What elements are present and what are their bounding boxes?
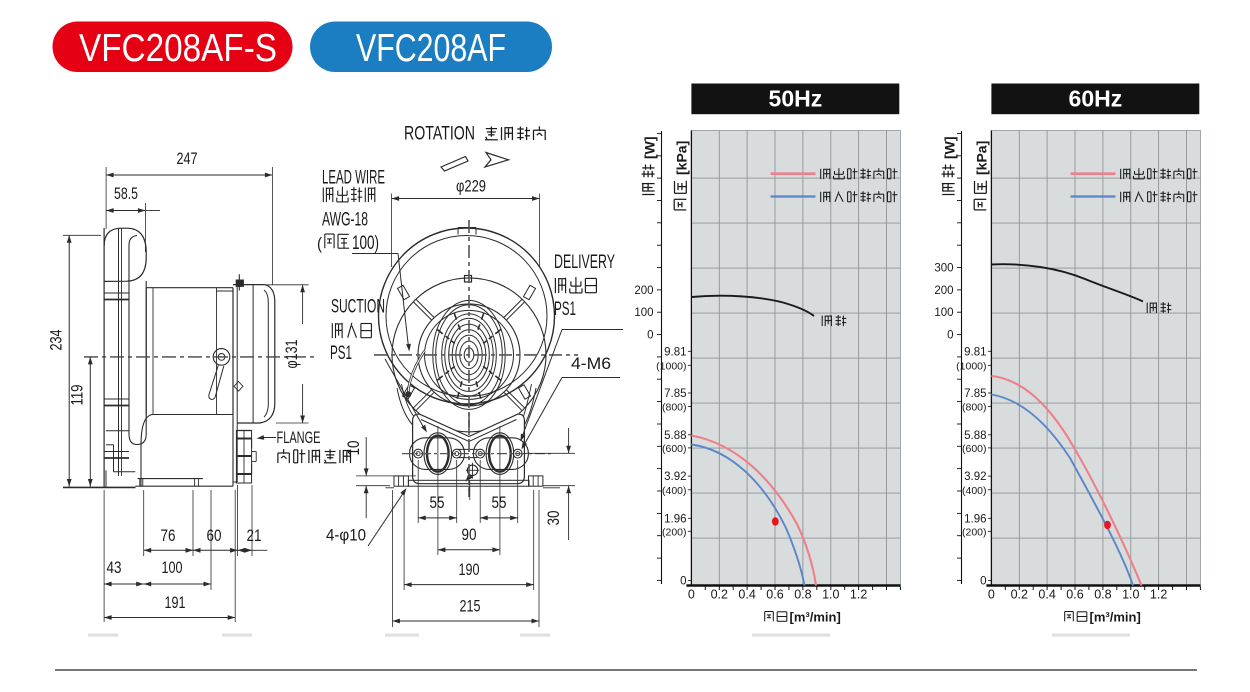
svg-text:LEAD WIRE: LEAD WIRE (322, 168, 385, 189)
svg-text:30: 30 (545, 511, 563, 526)
svg-text:VFC208AF-S: VFC208AF-S (79, 27, 277, 70)
svg-text:76: 76 (161, 527, 176, 545)
svg-text:0: 0 (680, 576, 686, 588)
svg-text:5.88: 5.88 (664, 430, 686, 442)
svg-text:55: 55 (492, 494, 507, 512)
svg-text:1.0: 1.0 (1122, 588, 1139, 602)
svg-text:0.2: 0.2 (1011, 588, 1028, 602)
svg-text:1.96: 1.96 (664, 513, 686, 525)
svg-text:100: 100 (934, 307, 953, 319)
svg-text:(400): (400) (662, 485, 687, 497)
svg-text:PS1: PS1 (330, 343, 352, 364)
svg-text:0.4: 0.4 (738, 588, 755, 602)
svg-text:[kPa]: [kPa] (974, 141, 990, 175)
svg-text:247: 247 (177, 150, 198, 168)
svg-text:(200): (200) (962, 526, 987, 538)
svg-text:(1000): (1000) (656, 360, 686, 372)
svg-text:(200): (200) (662, 526, 687, 538)
svg-text:200: 200 (634, 285, 653, 297)
svg-text:1.2: 1.2 (850, 588, 867, 602)
svg-text:1.2: 1.2 (1150, 588, 1167, 602)
svg-text:50Hz: 50Hz (769, 86, 823, 112)
svg-text:58.5: 58.5 (114, 185, 138, 203)
svg-text:0.6: 0.6 (766, 588, 783, 602)
svg-text:(: ( (317, 234, 322, 253)
svg-text:0: 0 (688, 588, 695, 602)
svg-text:[kPa]: [kPa] (674, 141, 690, 175)
svg-text:0: 0 (947, 330, 953, 342)
svg-text:100): 100) (352, 233, 379, 254)
svg-text:(800): (800) (662, 402, 687, 414)
svg-text:φ229: φ229 (456, 178, 486, 196)
svg-text:0.6: 0.6 (1066, 588, 1083, 602)
svg-text:60Hz: 60Hz (1069, 86, 1123, 112)
svg-text:(600): (600) (662, 443, 687, 455)
svg-text:100: 100 (162, 559, 183, 577)
svg-text:234: 234 (48, 330, 66, 351)
svg-text:215: 215 (460, 598, 481, 616)
svg-text:90: 90 (462, 526, 477, 544)
svg-text:(600): (600) (962, 443, 987, 455)
svg-text:7.85: 7.85 (964, 388, 986, 400)
svg-text:1.96: 1.96 (964, 513, 986, 525)
svg-text:9.81: 9.81 (664, 346, 686, 358)
svg-text:10: 10 (345, 441, 363, 456)
svg-text:4-M6: 4-M6 (571, 355, 611, 373)
svg-text:0: 0 (988, 588, 995, 602)
svg-text:3.92: 3.92 (664, 471, 686, 483)
svg-text:0.8: 0.8 (794, 588, 811, 602)
svg-text:SUCTION: SUCTION (331, 297, 385, 318)
svg-text:[m³/min]: [m³/min] (1090, 610, 1141, 625)
svg-text:200: 200 (934, 285, 953, 297)
svg-text:AWG-18: AWG-18 (322, 210, 368, 231)
svg-text:(1000): (1000) (956, 360, 986, 372)
svg-text:7.85: 7.85 (664, 388, 686, 400)
svg-text:0: 0 (647, 330, 653, 342)
svg-text:119: 119 (69, 385, 87, 406)
svg-text:100: 100 (634, 307, 653, 319)
svg-text:0.8: 0.8 (1094, 588, 1111, 602)
svg-text:55: 55 (430, 494, 445, 512)
svg-text:[W]: [W] (642, 136, 658, 159)
svg-text:PS1: PS1 (554, 299, 576, 320)
svg-text:3.92: 3.92 (964, 471, 986, 483)
svg-text:21: 21 (247, 527, 262, 545)
svg-text:190: 190 (459, 561, 480, 579)
svg-text:VFC208AF: VFC208AF (356, 27, 506, 70)
svg-text:0.4: 0.4 (1038, 588, 1055, 602)
svg-text:1.0: 1.0 (822, 588, 839, 602)
svg-text:0: 0 (980, 576, 986, 588)
svg-text:60: 60 (207, 527, 222, 545)
svg-text:φ131: φ131 (283, 340, 301, 369)
svg-text:[W]: [W] (942, 136, 958, 159)
svg-text:ROTATION: ROTATION (404, 124, 475, 145)
svg-text:FLANGE: FLANGE (277, 429, 321, 447)
svg-text:4-φ10: 4-φ10 (326, 527, 366, 545)
svg-text:191: 191 (165, 594, 186, 612)
svg-text:43: 43 (107, 559, 122, 577)
svg-text:(400): (400) (962, 485, 987, 497)
svg-text:300: 300 (934, 263, 953, 275)
svg-text:(800): (800) (962, 402, 987, 414)
svg-text:0.2: 0.2 (711, 588, 728, 602)
svg-text:5.88: 5.88 (964, 430, 986, 442)
svg-text:DELIVERY: DELIVERY (554, 252, 615, 273)
svg-text:[m³/min]: [m³/min] (790, 610, 841, 625)
svg-text:9.81: 9.81 (964, 346, 986, 358)
